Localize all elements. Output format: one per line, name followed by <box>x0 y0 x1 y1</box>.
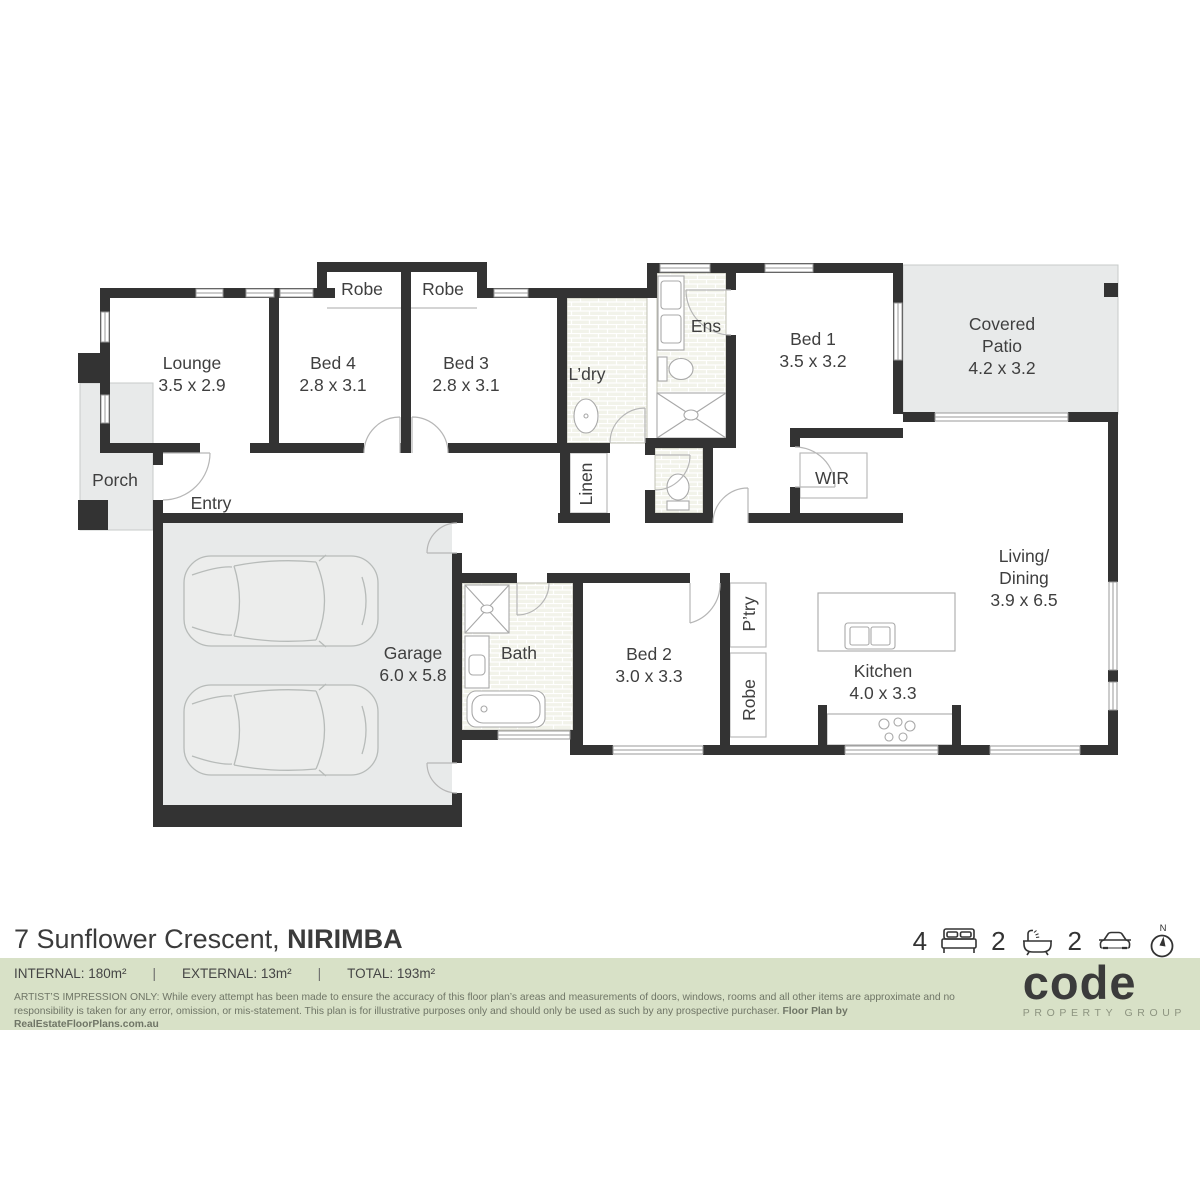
floorplan-page: Lounge 3.5 x 2.9 Bed 4 2.8 x 3.1 Bed 3 2… <box>0 0 1200 1200</box>
room-label-bath: Bath <box>501 642 537 664</box>
room-label-robe-bed2: Robe <box>738 679 760 721</box>
room-label-entry: Entry <box>191 492 232 514</box>
room-label-pantry: P’try <box>738 597 760 632</box>
room-label-laundry: L’dry <box>569 363 606 385</box>
disclaimer-text: ARTIST’S IMPRESSION ONLY: While every at… <box>14 991 959 1032</box>
room-label-porch: Porch <box>92 469 138 491</box>
ens-toilet <box>658 357 667 381</box>
disclaimer-line2: for any error, omission, or mis-statemen… <box>115 1006 783 1017</box>
room-label-bed3: Bed 3 2.8 x 3.1 <box>432 352 499 396</box>
property-summary: 4 2 2 N <box>913 922 1176 960</box>
external-area: EXTERNAL: 13m² <box>182 966 292 981</box>
room-label-wir: WIR <box>815 467 849 489</box>
stat-separator: | <box>153 966 157 981</box>
room-label-bed4: Bed 4 2.8 x 3.1 <box>299 352 366 396</box>
internal-area: INTERNAL: 180m² <box>14 966 127 981</box>
cooktop <box>879 719 889 729</box>
car-icon <box>1095 927 1135 955</box>
car-count: 2 <box>1068 926 1082 957</box>
room-label-garage: Garage 6.0 x 5.8 <box>379 642 446 686</box>
bath-count: 2 <box>991 926 1005 957</box>
address-title: 7 Sunflower Crescent, NIRIMBA <box>14 924 403 955</box>
address-street: 7 Sunflower Crescent, <box>14 924 287 954</box>
stat-separator: | <box>318 966 322 981</box>
room-label-robe-bed3: Robe <box>422 278 464 300</box>
room-label-robe-bed4: Robe <box>341 278 383 300</box>
room-label-linen: Linen <box>575 463 597 506</box>
compass-north-label: N <box>1160 923 1167 934</box>
area-stats: INTERNAL: 180m² | EXTERNAL: 13m² | TOTAL… <box>14 966 435 981</box>
total-area: TOTAL: 193m² <box>347 966 435 981</box>
room-label-kitchen: Kitchen 4.0 x 3.3 <box>849 660 916 704</box>
garage-car-1 <box>184 555 378 647</box>
room-label-patio: Covered Patio 4.2 x 3.2 <box>968 313 1035 379</box>
room-label-living-dining: Living/ Dining 3.9 x 6.5 <box>990 545 1057 611</box>
room-label-lounge: Lounge 3.5 x 2.9 <box>158 352 225 396</box>
bed-icon <box>940 926 978 956</box>
bath-icon <box>1019 926 1055 956</box>
code-property-group-logo: code PROPERTY GROUP <box>1023 960 1186 1019</box>
bed-count: 4 <box>913 926 927 957</box>
room-label-ensuite: Ens <box>691 315 721 337</box>
compass-icon: N <box>1148 922 1176 960</box>
logo-subtext: PROPERTY GROUP <box>1023 1007 1186 1019</box>
garage-car-2 <box>184 684 378 776</box>
address-suburb: NIRIMBA <box>287 924 403 954</box>
logo-wordmark: code <box>1023 960 1186 1006</box>
room-label-bed1: Bed 1 3.5 x 3.2 <box>779 328 846 372</box>
room-label-bed2: Bed 2 3.0 x 3.3 <box>615 643 682 687</box>
